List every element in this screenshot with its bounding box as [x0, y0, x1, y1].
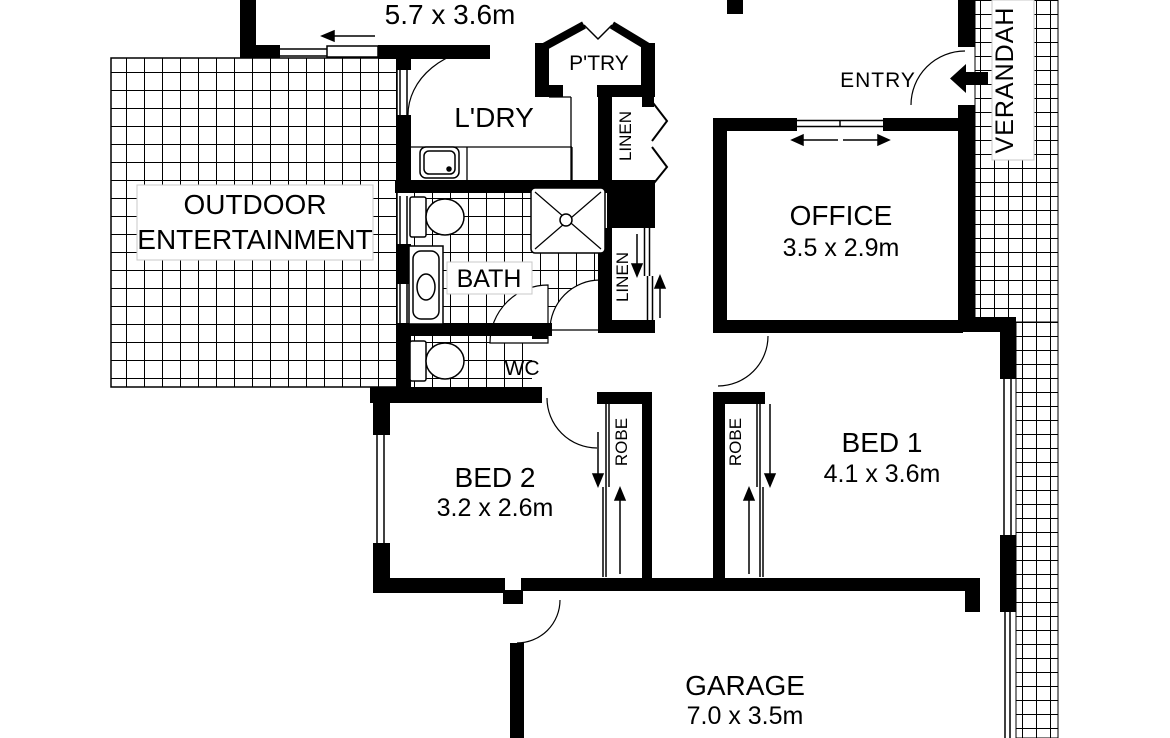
bed1-robe-label: ROBE	[726, 418, 745, 466]
bed2-dimension: 3.2 x 2.6m	[437, 494, 554, 522]
garage-label: GARAGE	[685, 670, 805, 701]
verandah-label: VERANDAH	[991, 7, 1019, 154]
garage-dimension: 7.0 x 3.5m	[687, 702, 804, 730]
top-room-dimension: 5.7 x 3.6m	[385, 0, 516, 30]
outdoor-label-line1: OUTDOOR	[183, 189, 326, 220]
laundry-label: L'DRY	[454, 102, 534, 133]
toilet-icon	[410, 341, 464, 381]
bed1-dimension: 4.1 x 3.6m	[824, 460, 941, 488]
bathtub-icon	[409, 246, 443, 324]
laundry-sink-icon	[420, 147, 459, 178]
floorplan-page: 5.7 x 3.6m OUTDOOR ENTERTAINMENT L'DRY P…	[0, 0, 1170, 738]
floorplan-drawing: 5.7 x 3.6m OUTDOOR ENTERTAINMENT L'DRY P…	[0, 0, 1170, 738]
entry-label: ENTRY	[840, 69, 916, 92]
office-label: OFFICE	[790, 200, 893, 231]
linen-upper-label: LINEN	[616, 111, 635, 161]
bed2-label: BED 2	[455, 462, 536, 493]
wc-label: WC	[505, 357, 540, 380]
linen-lower-label: LINEN	[613, 252, 632, 302]
bath-label: BATH	[457, 265, 522, 293]
outdoor-label-line2: ENTERTAINMENT	[137, 224, 372, 255]
toilet-icon	[410, 197, 464, 237]
office-dimension: 3.5 x 2.9m	[783, 234, 900, 262]
verandah-paving-lower	[1016, 322, 1058, 738]
outdoor-slider-panel	[327, 46, 378, 57]
bed2-robe-label: ROBE	[612, 418, 631, 466]
bed1-label: BED 1	[842, 427, 923, 458]
shower-icon	[531, 188, 605, 253]
pantry-label: P'TRY	[569, 52, 629, 75]
